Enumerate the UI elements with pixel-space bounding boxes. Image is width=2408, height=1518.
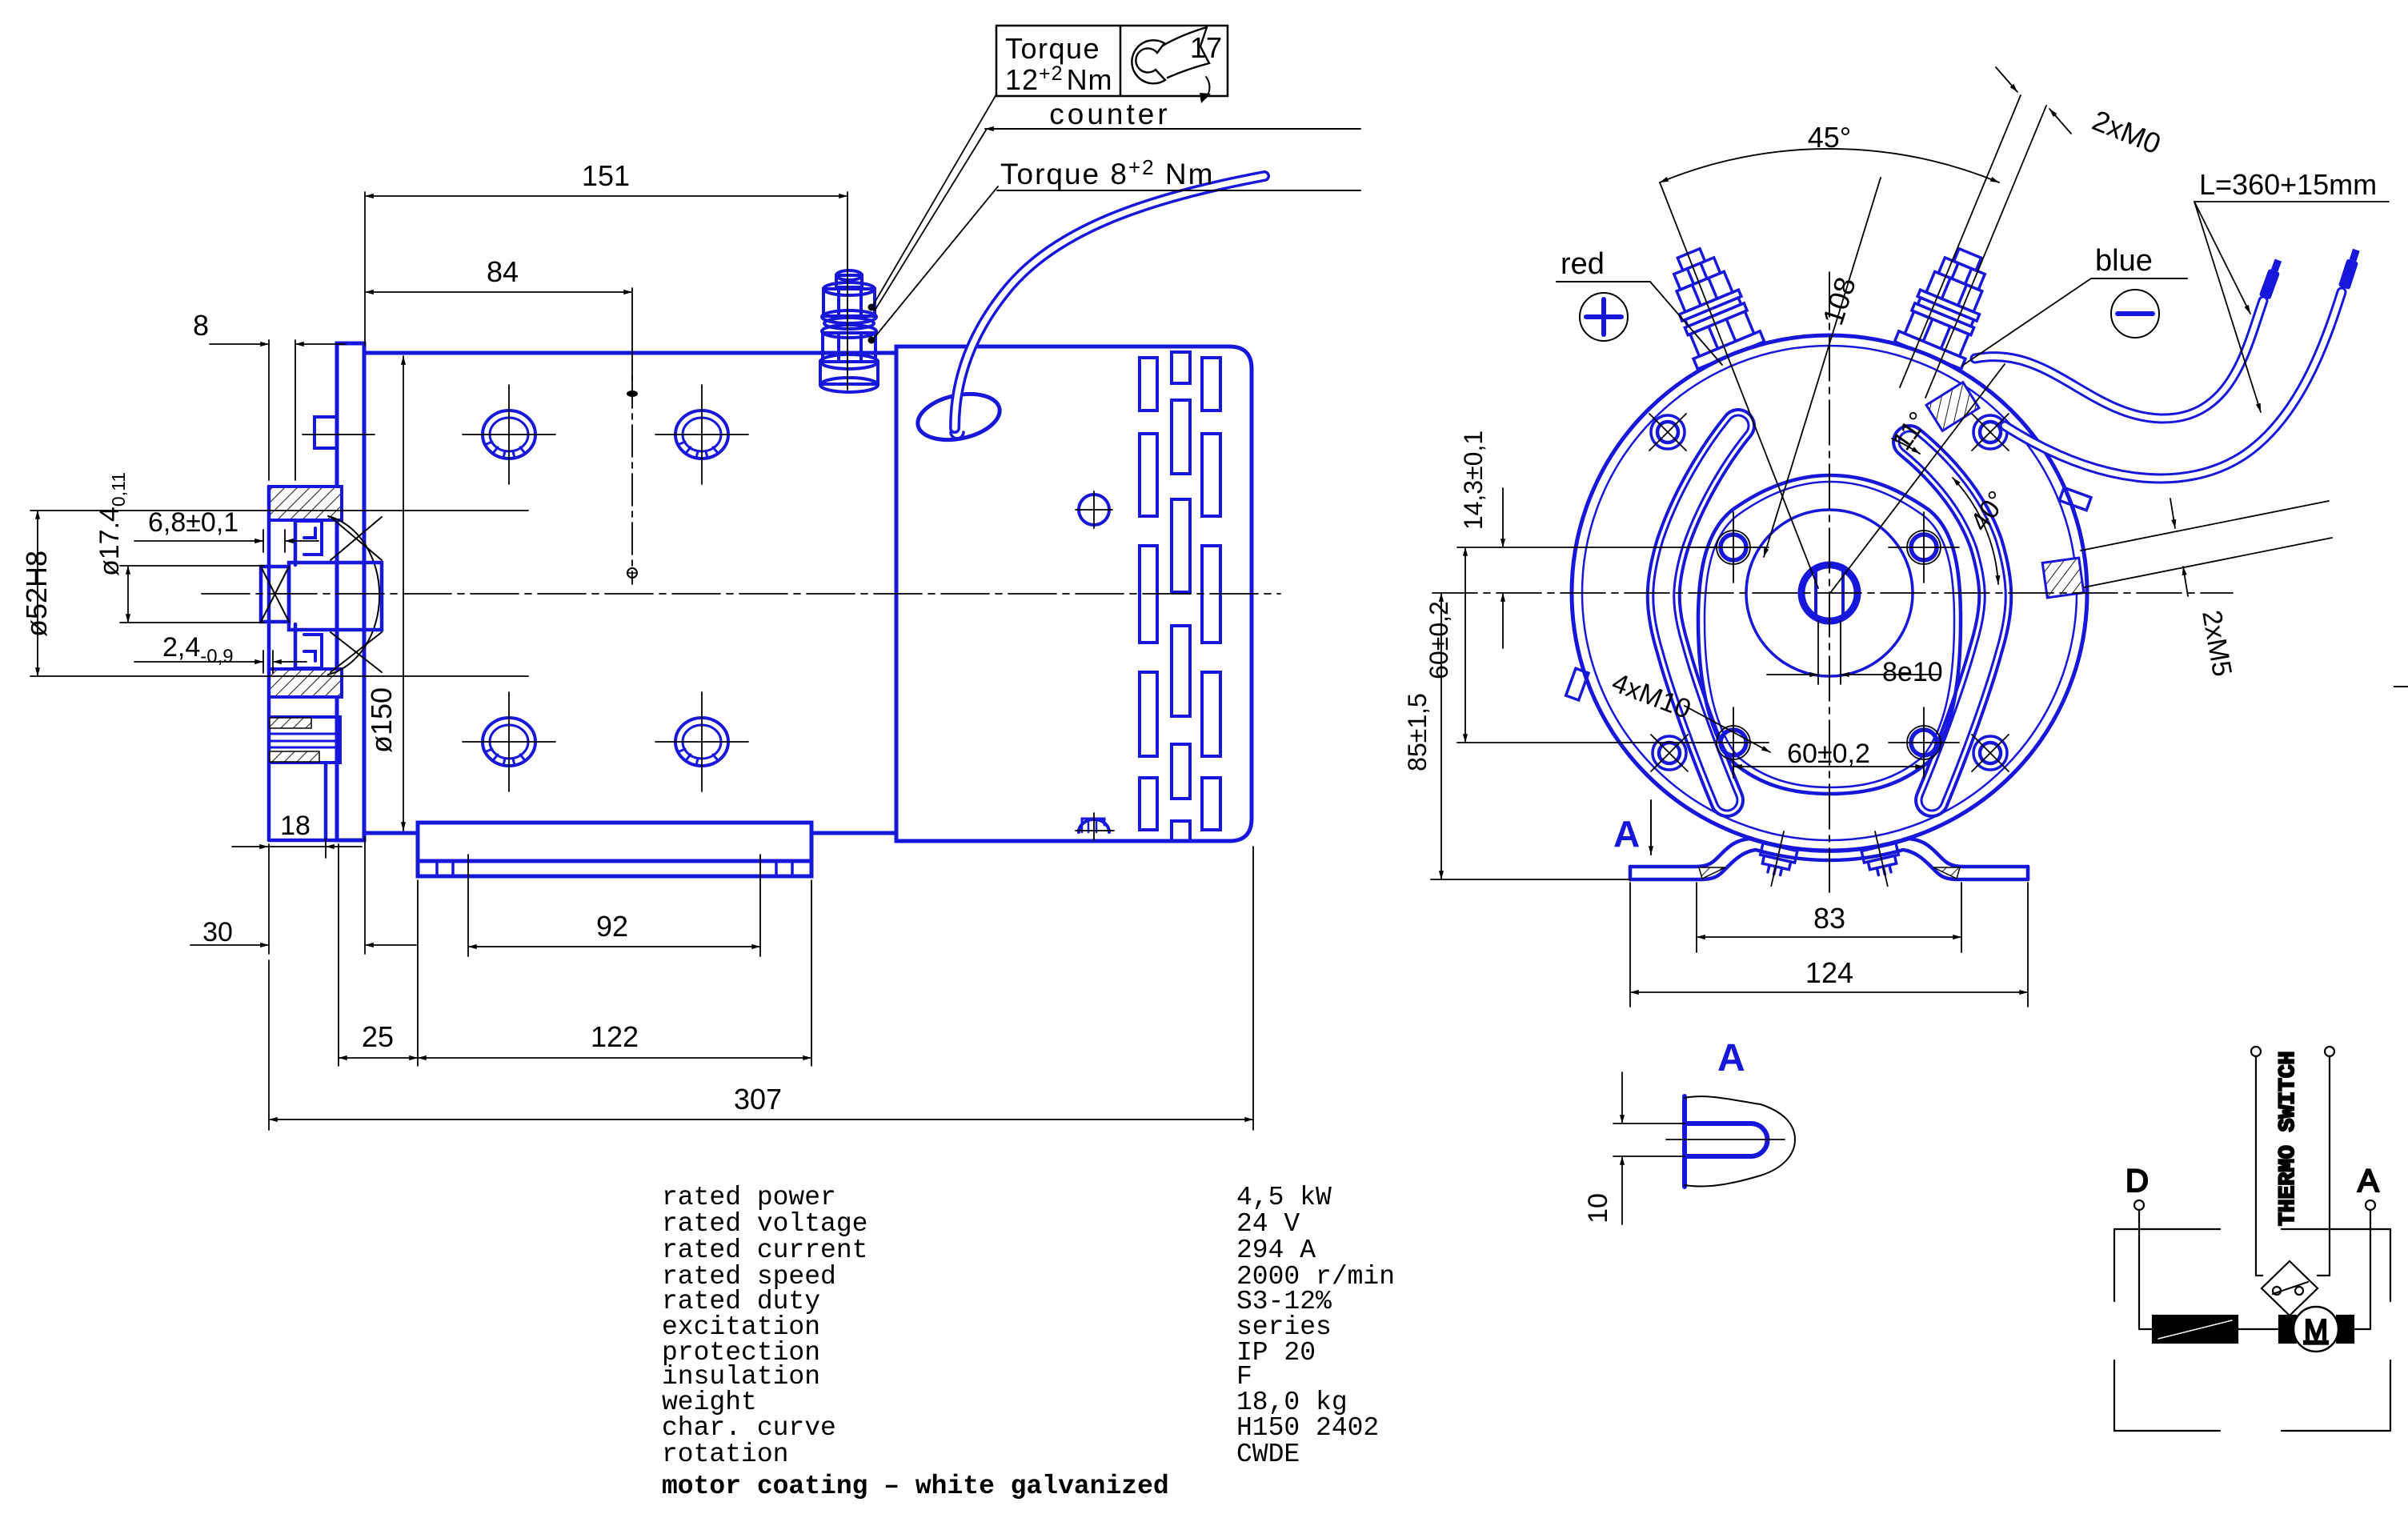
svg-text:45°: 45° — [1808, 121, 1851, 154]
svg-text:60±0,2: 60±0,2 — [1787, 739, 1870, 769]
svg-text:92: 92 — [596, 910, 628, 943]
svg-text:24 V: 24 V — [1236, 1209, 1300, 1239]
svg-text:H150 2402: H150 2402 — [1236, 1413, 1379, 1443]
svg-text:307: 307 — [734, 1083, 782, 1115]
svg-text:8: 8 — [193, 309, 209, 342]
svg-text:blue: blue — [2095, 244, 2153, 278]
svg-text:25: 25 — [362, 1020, 394, 1053]
svg-text:L=360+15mm: L=360+15mm — [2199, 168, 2377, 201]
svg-text:124: 124 — [1805, 956, 1853, 989]
svg-text:17: 17 — [1190, 31, 1222, 64]
svg-text:counter: counter — [1049, 98, 1170, 130]
svg-text:motor coating – white galvaniz: motor coating – white galvanized — [662, 1472, 1169, 1501]
svg-text:294 A: 294 A — [1236, 1236, 1316, 1265]
svg-text:M: M — [2304, 1313, 2328, 1346]
svg-text:ø52H8: ø52H8 — [20, 551, 53, 637]
svg-text:122: 122 — [591, 1020, 639, 1053]
svg-text:red: red — [1561, 247, 1605, 281]
svg-text:6,8±0,1: 6,8±0,1 — [148, 507, 238, 538]
svg-text:60±0,2: 60±0,2 — [1424, 601, 1453, 679]
svg-text:rated power: rated power — [662, 1183, 836, 1212]
svg-text:83: 83 — [1813, 902, 1845, 935]
svg-text:A: A — [2358, 1164, 2379, 1199]
svg-text:10: 10 — [1583, 1193, 1613, 1224]
svg-text:THERMO SWITCH: THERMO SWITCH — [2276, 1051, 2301, 1226]
svg-text:8e10: 8e10 — [1882, 657, 1943, 687]
svg-text:151: 151 — [582, 159, 630, 192]
svg-text:char. curve: char. curve — [662, 1413, 836, 1443]
svg-text:rotation: rotation — [662, 1440, 788, 1469]
svg-text:30: 30 — [202, 917, 233, 947]
svg-text:84: 84 — [487, 255, 519, 288]
svg-text:ø150: ø150 — [365, 687, 398, 753]
svg-text:D: D — [2126, 1164, 2149, 1199]
svg-text:rated voltage: rated voltage — [662, 1209, 867, 1239]
svg-text:rated current: rated current — [662, 1236, 867, 1265]
svg-text:4,5 kW: 4,5 kW — [1236, 1183, 1332, 1212]
svg-text:A: A — [1717, 1037, 1745, 1079]
svg-text:18: 18 — [280, 811, 311, 841]
svg-text:CWDE: CWDE — [1236, 1440, 1300, 1469]
svg-text:14,3±0,1: 14,3±0,1 — [1459, 431, 1488, 530]
svg-text:Torque 8+2 Nm: Torque 8+2 Nm — [1000, 155, 1214, 190]
svg-text:Torque: Torque — [1005, 32, 1100, 65]
svg-text:A: A — [1613, 813, 1640, 855]
svg-text:85±1,5: 85±1,5 — [1403, 693, 1432, 771]
